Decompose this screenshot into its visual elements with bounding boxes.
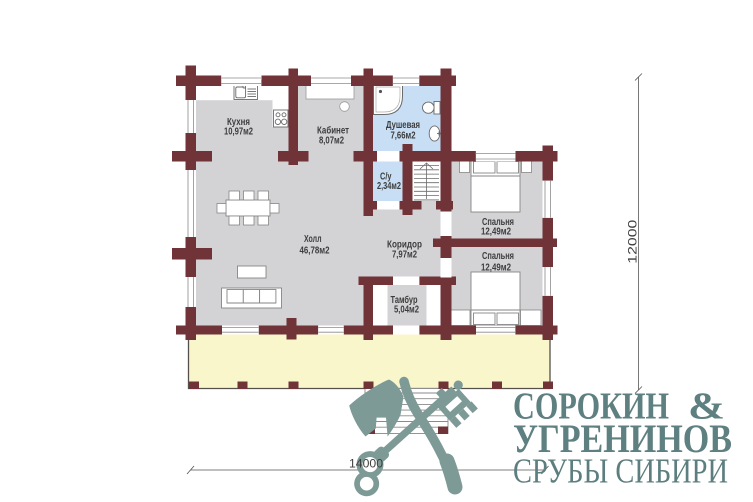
svg-text:14000: 14000 <box>349 457 383 471</box>
svg-text:7,66м2: 7,66м2 <box>391 131 416 142</box>
svg-text:Холл: Холл <box>304 234 322 245</box>
svg-text:5,04м2: 5,04м2 <box>394 305 419 316</box>
svg-text:Спальня: Спальня <box>482 251 514 262</box>
svg-text:12,49м2: 12,49м2 <box>481 263 511 274</box>
svg-text:7,97м2: 7,97м2 <box>392 250 417 261</box>
svg-text:10,97м2: 10,97м2 <box>224 127 253 138</box>
svg-text:46,78м2: 46,78м2 <box>300 246 330 257</box>
svg-text:12000: 12000 <box>626 219 640 263</box>
svg-text:2,34м2: 2,34м2 <box>377 181 401 192</box>
svg-text:СРУБЫ СИБИРИ: СРУБЫ СИБИРИ <box>513 451 728 490</box>
svg-text:Душевая: Душевая <box>386 120 420 131</box>
svg-text:8,07м2: 8,07м2 <box>319 136 344 147</box>
svg-text:12,49м2: 12,49м2 <box>481 227 511 238</box>
